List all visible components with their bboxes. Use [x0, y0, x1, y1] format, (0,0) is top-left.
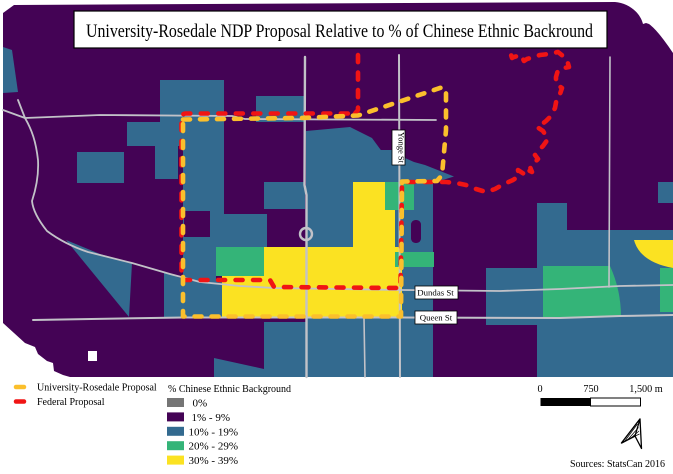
svg-text:750: 750: [583, 384, 598, 395]
svg-text:University-Rosedale NDP Propos: University-Rosedale NDP Proposal Relativ…: [86, 22, 594, 42]
svg-text:Yonge St: Yonge St: [397, 132, 407, 164]
svg-text:1,500 m: 1,500 m: [629, 384, 662, 395]
svg-text:30% - 39%: 30% - 39%: [189, 455, 239, 467]
svg-text:Sources: StatsCan 2016: Sources: StatsCan 2016: [570, 459, 665, 470]
svg-text:0: 0: [537, 384, 542, 395]
svg-text:20% - 29%: 20% - 29%: [189, 441, 239, 453]
svg-text:Federal Proposal: Federal Proposal: [37, 397, 105, 408]
svg-text:% Chinese Ethnic Background: % Chinese Ethnic Background: [168, 384, 291, 395]
svg-text:Queen St: Queen St: [420, 313, 453, 323]
svg-text:University-Rosedale Proposal: University-Rosedale Proposal: [37, 383, 157, 394]
svg-text:1% - 9%: 1% - 9%: [192, 412, 231, 424]
svg-text:Dundas St: Dundas St: [417, 288, 454, 298]
svg-text:0%: 0%: [193, 398, 208, 410]
svg-text:10% - 19%: 10% - 19%: [189, 426, 239, 438]
